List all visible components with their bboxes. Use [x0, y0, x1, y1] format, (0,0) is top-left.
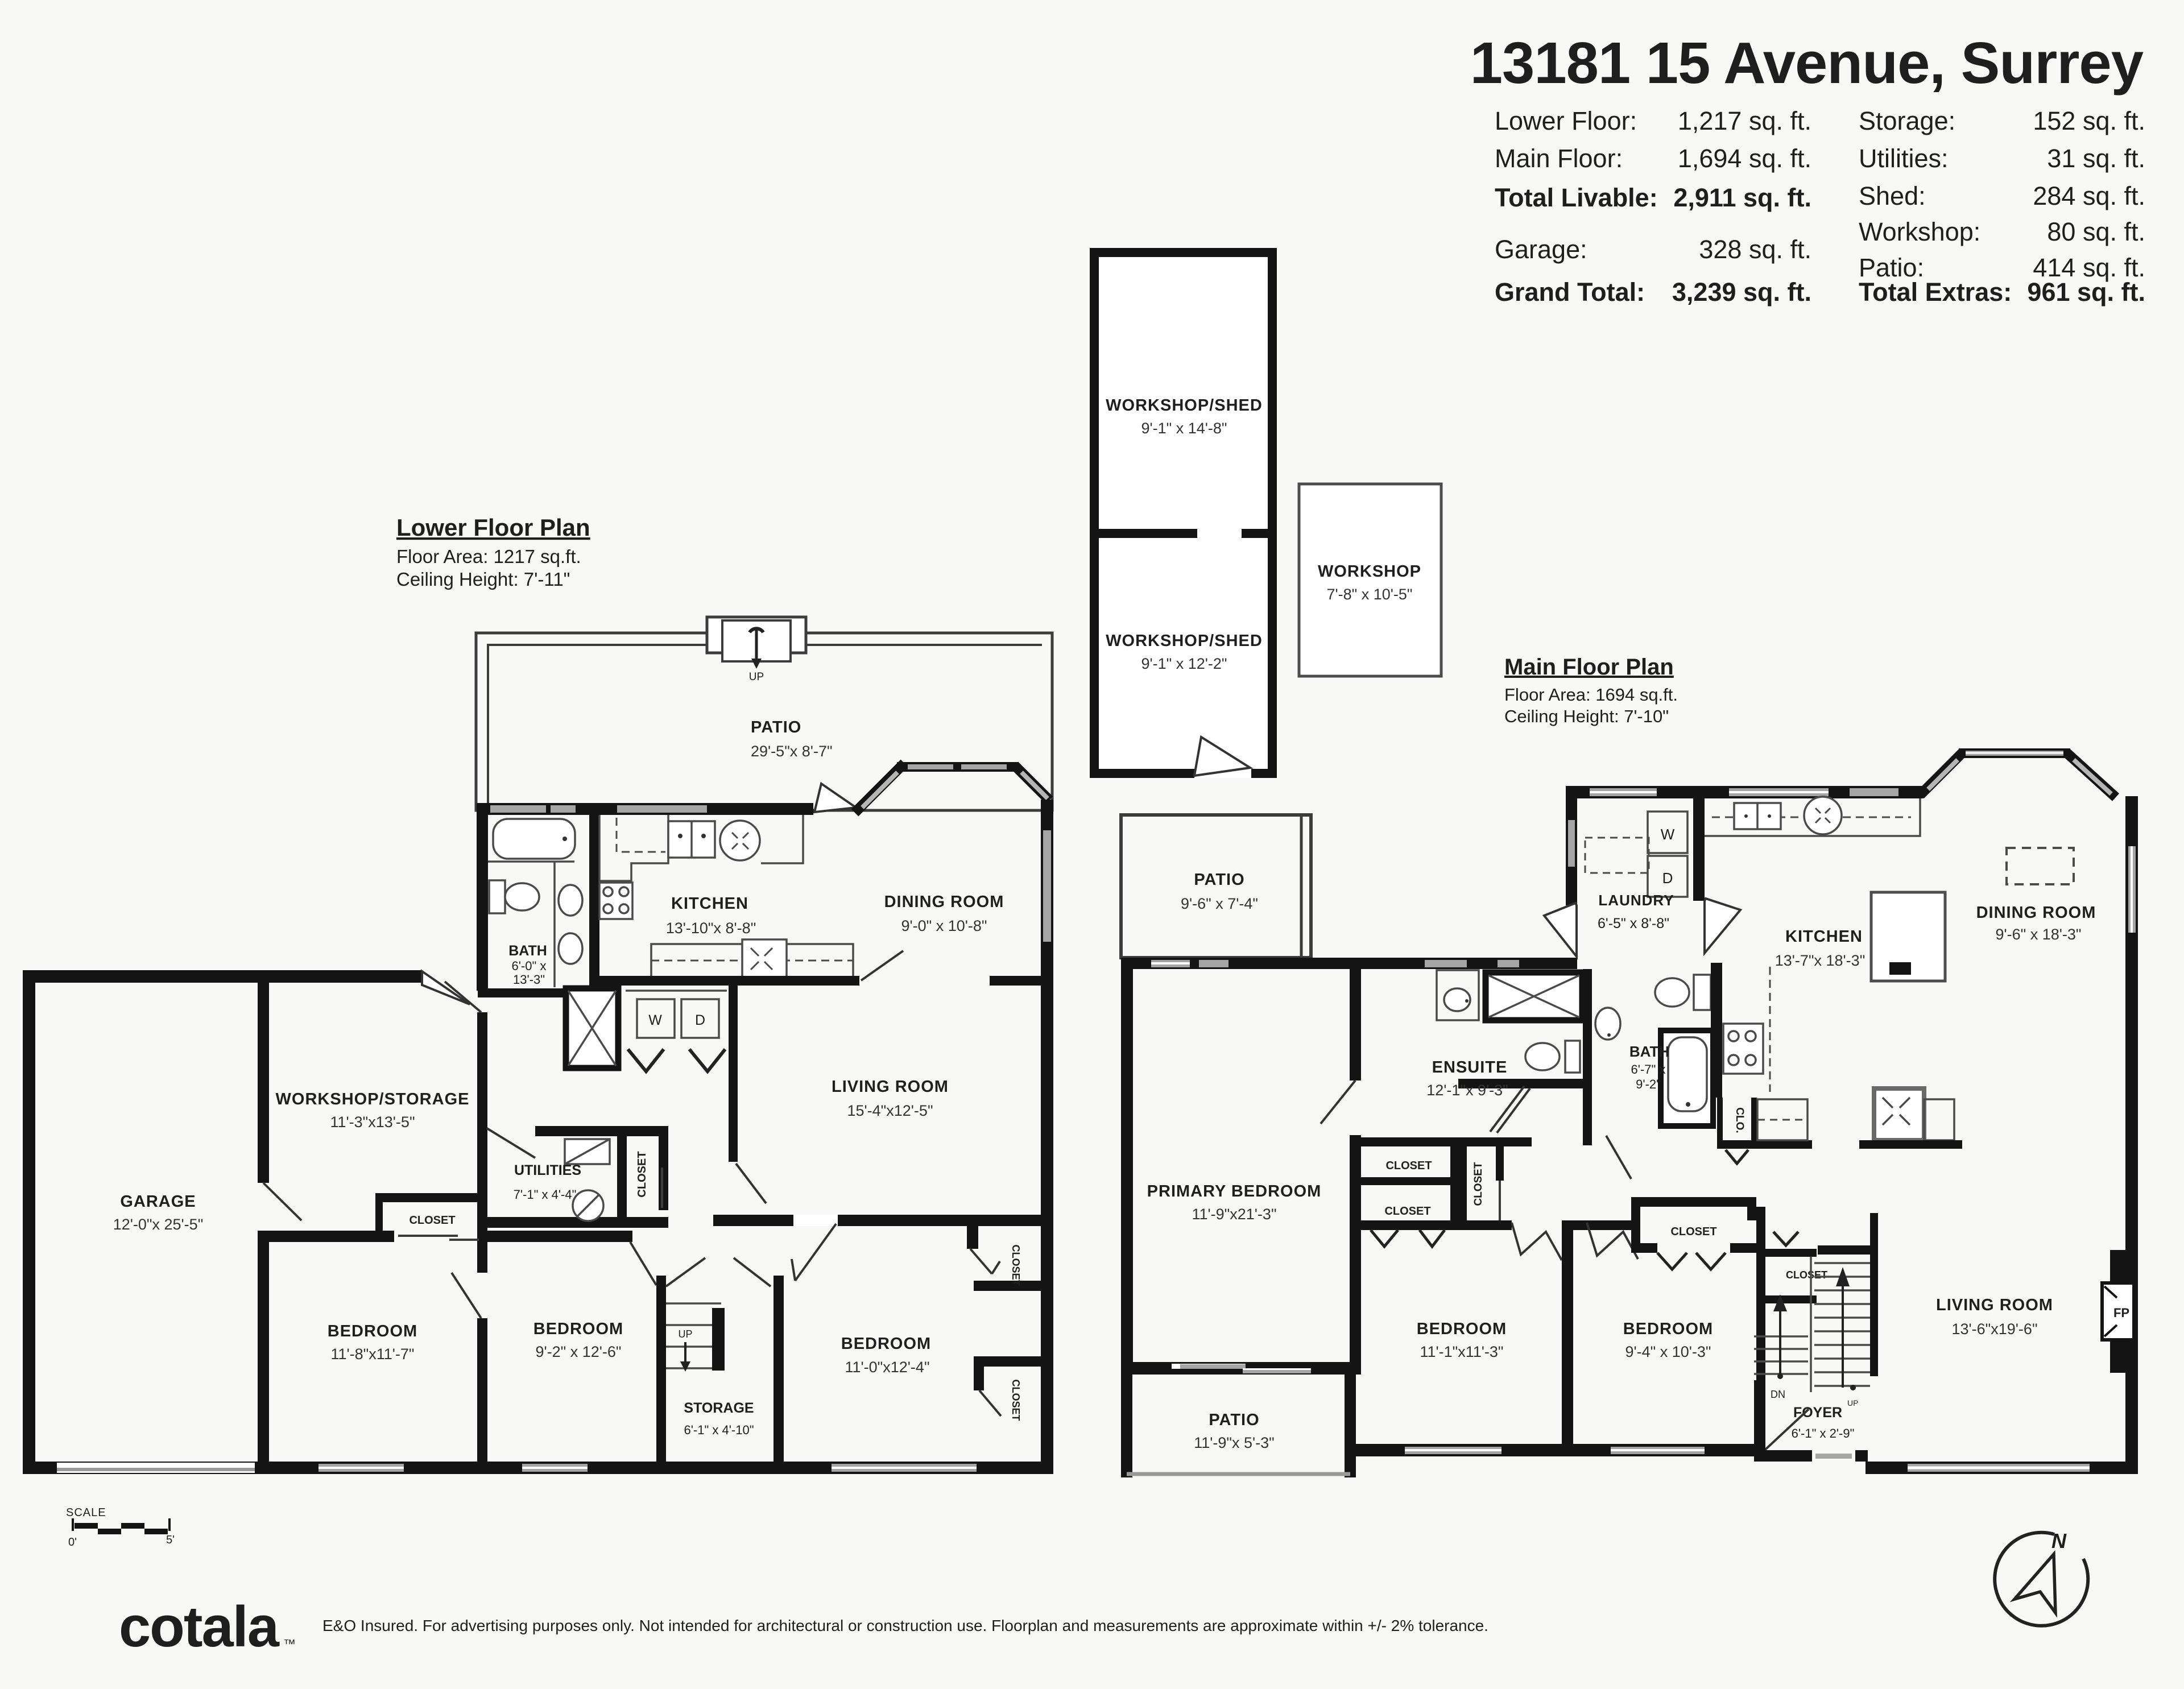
svg-text:9'-6" x 18'-3": 9'-6" x 18'-3": [1995, 926, 2081, 943]
svg-text:LIVING ROOM: LIVING ROOM: [1936, 1296, 2053, 1314]
svg-text:31 sq. ft.: 31 sq. ft.: [2047, 144, 2145, 173]
svg-text:Shed:: Shed:: [1859, 181, 1926, 210]
svg-text:PATIO: PATIO: [1209, 1411, 1259, 1429]
svg-text:152 sq. ft.: 152 sq. ft.: [2033, 106, 2145, 135]
svg-text:CLOSET: CLOSET: [636, 1151, 648, 1197]
svg-text:DN: DN: [1771, 1389, 1785, 1400]
svg-text:D: D: [1662, 870, 1673, 887]
svg-text:N: N: [2051, 1529, 2067, 1553]
svg-text:Total Livable:: Total Livable:: [1495, 183, 1658, 212]
svg-text:DINING ROOM: DINING ROOM: [884, 893, 1004, 911]
svg-text:BATH: BATH: [508, 943, 547, 959]
svg-text:Floor Area: 1694 sq.ft.: Floor Area: 1694 sq.ft.: [1504, 685, 1678, 705]
svg-text:284 sq. ft.: 284 sq. ft.: [2033, 181, 2145, 210]
svg-text:UP: UP: [678, 1328, 692, 1340]
svg-text:1,694 sq. ft.: 1,694 sq. ft.: [1678, 144, 1811, 173]
svg-text:11'-9"x21'-3": 11'-9"x21'-3": [1192, 1206, 1276, 1223]
svg-text:UTILITIES: UTILITIES: [514, 1162, 581, 1178]
svg-text:E&O Insured. For advertising p: E&O Insured. For advertising purposes on…: [322, 1617, 1488, 1634]
svg-text:UP: UP: [749, 671, 764, 683]
svg-text:11'-8"x11'-7": 11'-8"x11'-7": [330, 1346, 414, 1363]
svg-text:cotala: cotala: [119, 1595, 280, 1659]
svg-text:Main Floor Plan: Main Floor Plan: [1504, 655, 1674, 680]
svg-text:Lower Floor Plan: Lower Floor Plan: [396, 514, 590, 541]
svg-text:11'-3"x13'-5": 11'-3"x13'-5": [330, 1113, 415, 1131]
svg-text:CLOSET: CLOSET: [1472, 1162, 1484, 1206]
svg-text:WORKSHOP/SHED: WORKSHOP/SHED: [1106, 632, 1263, 650]
svg-text:13'-3": 13'-3": [513, 972, 545, 987]
svg-text:PATIO: PATIO: [1194, 871, 1244, 889]
svg-text:5': 5': [166, 1534, 175, 1546]
svg-text:6'-7" x: 6'-7" x: [1631, 1062, 1666, 1077]
svg-text:Workshop:: Workshop:: [1859, 217, 1980, 246]
svg-text:PRIMARY BEDROOM: PRIMARY BEDROOM: [1147, 1182, 1322, 1200]
svg-text:9'-2" x 12'-6": 9'-2" x 12'-6": [535, 1343, 621, 1360]
svg-text:WORKSHOP/STORAGE: WORKSHOP/STORAGE: [276, 1090, 470, 1108]
svg-text:GARAGE: GARAGE: [120, 1193, 196, 1211]
svg-text:6'-1" x 4'-10": 6'-1" x 4'-10": [684, 1423, 754, 1437]
svg-text:PATIO: PATIO: [751, 718, 801, 736]
svg-text:3,239 sq. ft.: 3,239 sq. ft.: [1672, 278, 1811, 307]
svg-text:Ceiling Height: 7'-10": Ceiling Height: 7'-10": [1504, 706, 1669, 726]
svg-text:328 sq. ft.: 328 sq. ft.: [1699, 235, 1811, 264]
svg-text:13181 15 Avenue, Surrey: 13181 15 Avenue, Surrey: [1470, 30, 2144, 96]
svg-text:BEDROOM: BEDROOM: [533, 1320, 623, 1338]
svg-text:STORAGE: STORAGE: [684, 1400, 754, 1416]
svg-text:CLOSET: CLOSET: [409, 1214, 455, 1227]
svg-text:Ceiling Height: 7'-11": Ceiling Height: 7'-11": [396, 569, 570, 590]
svg-text:CLOSET: CLOSET: [1670, 1226, 1716, 1238]
svg-text:BEDROOM: BEDROOM: [841, 1335, 931, 1353]
svg-text:9'-0" x 10'-8": 9'-0" x 10'-8": [901, 917, 987, 934]
svg-text:SCALE: SCALE: [66, 1506, 106, 1519]
svg-text:11'-1"x11'-3": 11'-1"x11'-3": [1420, 1343, 1503, 1360]
svg-text:W: W: [1661, 826, 1675, 843]
svg-text:UP: UP: [1847, 1398, 1858, 1407]
svg-text:Floor Area: 1217 sq.ft.: Floor Area: 1217 sq.ft.: [396, 546, 581, 567]
svg-text:LIVING ROOM: LIVING ROOM: [832, 1078, 949, 1096]
svg-text:13'-6"x19'-6": 13'-6"x19'-6": [1951, 1320, 2037, 1338]
svg-text:11'-0"x12'-4": 11'-0"x12'-4": [845, 1359, 929, 1376]
svg-text:D: D: [695, 1012, 705, 1028]
svg-text:WORKSHOP/SHED: WORKSHOP/SHED: [1106, 396, 1263, 415]
svg-text:13'-10"x 8'-8": 13'-10"x 8'-8": [666, 920, 756, 937]
svg-text:9'-2": 9'-2": [1636, 1077, 1661, 1091]
svg-text:CLOSET: CLOSET: [1385, 1160, 1432, 1172]
svg-text:CLO.: CLO.: [1734, 1107, 1745, 1133]
svg-text:CLOSET: CLOSET: [1010, 1379, 1021, 1421]
svg-text:13'-7"x 18'-3": 13'-7"x 18'-3": [1775, 952, 1865, 969]
svg-text:6'-1" x 2'-9": 6'-1" x 2'-9": [1792, 1426, 1855, 1440]
svg-text:1,217 sq. ft.: 1,217 sq. ft.: [1678, 106, 1811, 135]
svg-text:12'-0"x 25'-5": 12'-0"x 25'-5": [113, 1216, 204, 1233]
svg-text:15'-4"x12'-5": 15'-4"x12'-5": [847, 1102, 933, 1119]
svg-text:9'-1" x 12'-2": 9'-1" x 12'-2": [1141, 655, 1227, 672]
svg-text:KITCHEN: KITCHEN: [671, 895, 748, 913]
svg-text:Garage:: Garage:: [1495, 235, 1587, 264]
svg-text:9'-6" x 7'-4": 9'-6" x 7'-4": [1181, 895, 1258, 912]
svg-text:6'-0" x: 6'-0" x: [512, 959, 547, 973]
svg-text:9'-1" x 14'-8": 9'-1" x 14'-8": [1141, 420, 1227, 437]
svg-text:W: W: [648, 1012, 662, 1028]
svg-text:ENSUITE: ENSUITE: [1432, 1058, 1508, 1077]
svg-text:961 sq. ft.: 961 sq. ft.: [2027, 278, 2145, 307]
svg-text:BEDROOM: BEDROOM: [1417, 1320, 1507, 1338]
svg-text:BEDROOM: BEDROOM: [1623, 1320, 1713, 1338]
svg-text:DINING ROOM: DINING ROOM: [1976, 904, 2096, 922]
svg-text:Grand Total:: Grand Total:: [1495, 278, 1645, 307]
svg-text:6'-5" x 8'-8": 6'-5" x 8'-8": [1598, 916, 1669, 932]
svg-text:Lower Floor:: Lower Floor:: [1495, 106, 1637, 135]
svg-text:CLOSET: CLOSET: [1384, 1205, 1430, 1218]
svg-text:CLOSET: CLOSET: [1010, 1244, 1021, 1286]
svg-text:Utilities:: Utilities:: [1859, 144, 1949, 173]
svg-text:CLOSET: CLOSET: [1786, 1269, 1827, 1281]
svg-text:BEDROOM: BEDROOM: [328, 1322, 417, 1340]
svg-text:FP: FP: [2113, 1306, 2129, 1320]
svg-text:WORKSHOP: WORKSHOP: [1318, 562, 1421, 581]
svg-text:9'-4" x 10'-3": 9'-4" x 10'-3": [1625, 1343, 1711, 1360]
svg-text:12'-1"x 9'-3": 12'-1"x 9'-3": [1426, 1082, 1508, 1099]
svg-text:KITCHEN: KITCHEN: [1785, 928, 1863, 946]
svg-text:7'-8" x 10'-5": 7'-8" x 10'-5": [1326, 586, 1412, 603]
svg-text:7'-1" x 4'-4": 7'-1" x 4'-4": [514, 1187, 577, 1202]
svg-text:Main Floor:: Main Floor:: [1495, 144, 1623, 173]
svg-text:LAUNDRY: LAUNDRY: [1598, 892, 1674, 909]
svg-text:29'-5"x 8'-7": 29'-5"x 8'-7": [751, 743, 833, 760]
svg-text:2,911 sq. ft.: 2,911 sq. ft.: [1673, 183, 1811, 212]
svg-text:BATH: BATH: [1629, 1043, 1669, 1060]
svg-text:80 sq. ft.: 80 sq. ft.: [2047, 217, 2145, 246]
svg-text:0': 0': [68, 1536, 77, 1549]
svg-text:Total Extras:: Total Extras:: [1859, 278, 2012, 307]
svg-text:11'-9"x 5'-3": 11'-9"x 5'-3": [1194, 1434, 1275, 1451]
svg-text:Storage:: Storage:: [1859, 106, 1955, 135]
svg-text:™: ™: [283, 1637, 296, 1651]
